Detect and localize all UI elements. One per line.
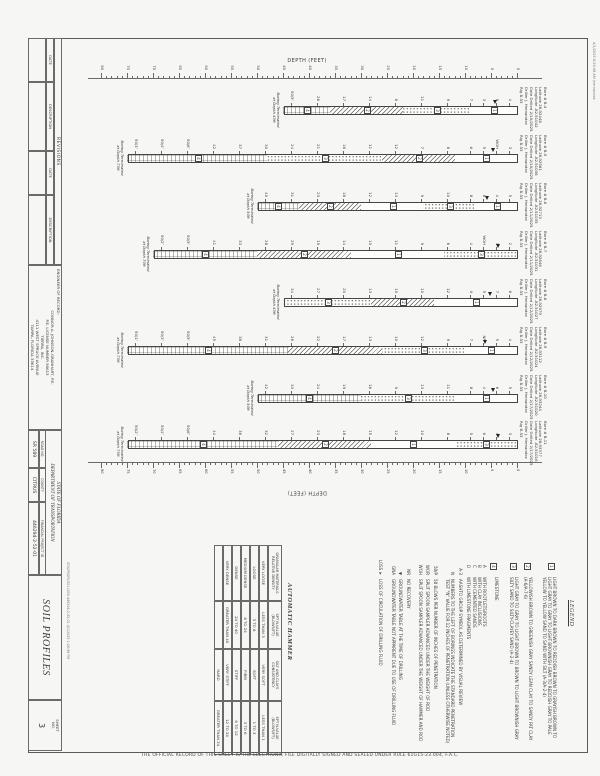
depth-axis-left-tick bbox=[226, 76, 227, 78]
spt-tick bbox=[291, 437, 292, 440]
hammer-header-cell: SILT AND CLAYS CONSISTENCY bbox=[268, 649, 282, 701]
spt-tick bbox=[421, 151, 422, 154]
spt-tick bbox=[510, 199, 511, 202]
depth-axis-left-tick bbox=[174, 76, 175, 78]
depth-axis-right-tick-label: 20 bbox=[412, 469, 416, 478]
spt-tick bbox=[265, 151, 266, 154]
spt-n-value: 12 bbox=[394, 137, 398, 149]
depth-axis-right-tick bbox=[486, 463, 487, 465]
boring-header-line: Date Drilled 2/12/2025 bbox=[528, 327, 532, 371]
depth-axis-right-tick bbox=[367, 463, 368, 465]
hammer-cell: 24 TO 40 bbox=[232, 601, 241, 649]
depth-axis-left-tick bbox=[408, 76, 409, 78]
legend-item-text: LIGHT GRAY TO GRAY TO LIGHT BROWN TO BRO… bbox=[508, 577, 518, 745]
spt-n-value: 11 bbox=[368, 137, 372, 149]
depth-axis-right-tick bbox=[320, 463, 321, 465]
engineer-of-record-header: ENGINEER OF RECORD: bbox=[56, 269, 60, 315]
spt-n-value: 28 bbox=[290, 329, 294, 341]
depth-axis-right-tick-label: 5 bbox=[490, 469, 494, 478]
spt-n-value: 50/6″ bbox=[186, 137, 190, 149]
legend-modifier-text: WITH ROOTLETS/ROOTS bbox=[482, 577, 487, 627]
depth-axis-left-tick-label: 0 bbox=[516, 61, 520, 70]
boring-header-line: Bore # B-7 bbox=[543, 231, 547, 252]
groundwater-triangle-icon bbox=[488, 292, 492, 296]
spt-tick bbox=[497, 199, 498, 202]
spt-n-value: 10 bbox=[420, 423, 424, 435]
legend-note-text: AASHTO GROUP SYMBOL AS DETERMINED BY VIS… bbox=[457, 579, 462, 745]
engineer-line: TAMPA, FLORIDA 33614 bbox=[30, 265, 34, 430]
depth-axis-right-tick bbox=[179, 463, 180, 468]
depth-axis-left-tick bbox=[434, 76, 435, 78]
legend-note-key: 50/P bbox=[432, 553, 437, 575]
spt-n-value: 36 bbox=[238, 423, 242, 435]
spt-tick bbox=[471, 391, 472, 394]
depth-axis-left-tick-label: 55 bbox=[230, 61, 234, 70]
depth-axis-right-tick-label: 65 bbox=[178, 469, 182, 478]
stratum-symbol-box: 2 bbox=[301, 251, 308, 258]
spt-tick bbox=[369, 103, 370, 106]
spt-n-value: 24 bbox=[316, 377, 320, 389]
depth-axis-right-tick-label: 15 bbox=[438, 469, 442, 478]
spt-n-value: 4 bbox=[495, 423, 499, 435]
hammer-table-title: AUTOMATIC HAMMER bbox=[286, 583, 293, 660]
spt-tick bbox=[471, 103, 472, 106]
spt-n-value: 26 bbox=[316, 89, 320, 101]
depth-axis-right-tick-label: 10 bbox=[464, 469, 468, 478]
boring-header-line: Date Drilled 2/10/2025 bbox=[528, 135, 532, 179]
depth-axis-left-tick bbox=[367, 76, 368, 78]
depth-axis-left-tick bbox=[486, 76, 487, 78]
spt-n-value: 50/5″ bbox=[186, 233, 190, 245]
depth-axis-left-tick bbox=[393, 76, 394, 78]
depth-axis-right-tick bbox=[502, 463, 503, 465]
legend-note-key: WOH bbox=[417, 553, 422, 575]
file-stamp: SOILPROFILE01.DGN 446294-2-52-01 4/1/202… bbox=[65, 562, 69, 659]
legend-modifier-text: WITH CLAY INCLUSIONS bbox=[476, 577, 481, 626]
stratum-symbol-box: 3 bbox=[325, 299, 332, 306]
hammer-cell: HARD bbox=[214, 649, 223, 701]
spt-n-value: WOH bbox=[482, 233, 486, 245]
spt-tick bbox=[447, 199, 448, 202]
print-stamp: 4/1/2025 8:26:48 AM jhernandez bbox=[592, 42, 596, 99]
spt-tick bbox=[239, 247, 240, 250]
sheet-title: SOIL PROFILES bbox=[40, 575, 52, 700]
spt-tick bbox=[510, 437, 511, 440]
hammer-cell: SOFT bbox=[250, 649, 259, 701]
depth-axis-left-tick bbox=[143, 76, 144, 78]
spt-n-value: 11 bbox=[446, 377, 450, 389]
spt-tick bbox=[447, 343, 448, 346]
depth-axis-left-tick bbox=[419, 76, 420, 78]
spt-tick bbox=[161, 437, 162, 440]
stratum-symbol-box: 2 bbox=[364, 107, 371, 114]
stratum-symbol-box: 3 bbox=[434, 107, 441, 114]
stratum-symbol-box: 1 bbox=[491, 107, 498, 114]
spt-n-value: 7 bbox=[469, 89, 473, 101]
legend-note-text: SPLIT SPOON SAMPLER ADVANCED UNDER THE W… bbox=[425, 579, 430, 745]
depth-axis-left-tick bbox=[117, 76, 118, 78]
depth-axis-right-tick-label: 30 bbox=[360, 469, 364, 478]
spt-n-value: 12 bbox=[446, 281, 450, 293]
stratum-symbol-box: 1 bbox=[390, 203, 397, 210]
hammer-cell: DENSE bbox=[232, 545, 241, 601]
legend-item-symbol: 3 bbox=[510, 563, 517, 570]
spt-tick bbox=[497, 391, 498, 394]
legend-item-text: LIGHT BROWN TO DARK BROWN TO REDDISH BRO… bbox=[541, 577, 556, 745]
depth-axis-right-tick-label: 45 bbox=[282, 469, 286, 478]
boring-header-line: Driller J. Hernandez bbox=[524, 327, 528, 365]
spt-n-value: 50/3″ bbox=[160, 329, 164, 341]
depth-axis-right-tick bbox=[309, 463, 310, 468]
depth-axis-left-tick-label: 5 bbox=[490, 61, 494, 70]
fdot-col-label: ROAD NO. bbox=[39, 430, 46, 468]
depth-axis-right-tick bbox=[112, 463, 113, 465]
spt-n-value: 3 bbox=[495, 233, 499, 245]
depth-axis-right-tick bbox=[216, 463, 217, 465]
depth-axis-left-tick-label: 80 bbox=[100, 61, 104, 70]
depth-axis-left-tick bbox=[205, 73, 206, 78]
termination-note-line: at Depth 75ft bbox=[115, 423, 119, 465]
hammer-cell: VERY LOOSE bbox=[259, 545, 268, 601]
depth-axis-left-tick bbox=[122, 76, 123, 78]
spt-tick bbox=[484, 151, 485, 154]
depth-axis-left-tick bbox=[351, 76, 352, 78]
legend-note-text: SPLIT SPOON SAMPLER ADVANCED UNDER THE W… bbox=[417, 579, 422, 745]
spt-tick bbox=[187, 343, 188, 346]
hammer-cell: FIRM bbox=[241, 649, 250, 701]
spt-n-value: 6 bbox=[482, 423, 486, 435]
spt-tick bbox=[343, 437, 344, 440]
depth-axis-left-tick bbox=[491, 73, 492, 78]
spt-n-value: 5 bbox=[482, 137, 486, 149]
boring-header-line: Rig B-53 bbox=[519, 135, 523, 152]
rotated-landscape-sheet: 4/1/2025 8:26:48 AM jhernandezSOILPROFIL… bbox=[0, 0, 600, 776]
stratum-symbol-box: 3 bbox=[478, 251, 485, 258]
spt-n-value: 38 bbox=[238, 329, 242, 341]
spt-n-value: 31 bbox=[290, 185, 294, 197]
spt-n-value: 50/4″ bbox=[160, 137, 164, 149]
spt-tick bbox=[510, 151, 511, 154]
depth-axis-left-tick bbox=[169, 76, 170, 78]
boring-column bbox=[284, 106, 518, 115]
spt-n-value: 7 bbox=[420, 137, 424, 149]
stratum-symbol-box: 1 bbox=[489, 347, 496, 354]
spt-n-value: 50/4″ bbox=[160, 423, 164, 435]
legend-modifier-key: C bbox=[471, 565, 476, 568]
spt-tick bbox=[369, 295, 370, 298]
depth-axis-left-tick bbox=[257, 73, 258, 78]
termination-note-line: at Depth 45ft bbox=[271, 89, 275, 131]
spt-n-value: 6 bbox=[495, 377, 499, 389]
spt-n-value: 4 bbox=[495, 185, 499, 197]
spt-n-value: 6 bbox=[469, 137, 473, 149]
depth-axis-left-tick bbox=[497, 76, 498, 78]
spt-tick bbox=[291, 199, 292, 202]
spt-tick bbox=[510, 343, 511, 346]
depth-axis-left-tick-label: 75 bbox=[126, 61, 130, 70]
spt-tick bbox=[239, 343, 240, 346]
groundwater-triangle-icon bbox=[491, 388, 495, 392]
depth-axis-right-tick bbox=[247, 463, 248, 465]
depth-axis-right-tick bbox=[252, 463, 253, 465]
depth-axis-right-tick bbox=[107, 463, 108, 465]
boring-header-line: Rig B-53 bbox=[519, 375, 523, 392]
boring-column bbox=[258, 394, 518, 403]
depth-axis-right-tick bbox=[419, 463, 420, 465]
depth-axis-right-tick bbox=[424, 463, 425, 465]
depth-axis-left-tick bbox=[190, 76, 191, 78]
spt-tick bbox=[343, 247, 344, 250]
spt-n-value: 7 bbox=[469, 329, 473, 341]
depth-axis-left-tick bbox=[231, 73, 232, 78]
spt-tick bbox=[291, 151, 292, 154]
fdot-state: STATE OF FLORIDA bbox=[54, 430, 60, 575]
depth-axis-right-tick bbox=[471, 463, 472, 465]
spt-tick bbox=[471, 151, 472, 154]
depth-axis-right-tick bbox=[346, 463, 347, 465]
hammer-cell: 12 TO 24 bbox=[223, 701, 232, 755]
depth-axis-right-tick bbox=[205, 463, 206, 468]
spt-tick bbox=[369, 343, 370, 346]
depth-axis-right-tick bbox=[330, 463, 331, 465]
depth-axis-right-tick bbox=[372, 463, 373, 465]
termination-note-line: Boring Terminated bbox=[120, 329, 124, 371]
hammer-cell: 8 TO 24 bbox=[241, 601, 250, 649]
depth-axis-right-tick bbox=[294, 463, 295, 465]
spt-tick bbox=[317, 247, 318, 250]
spt-tick bbox=[369, 437, 370, 440]
legend-note-text: 50 BLOWS PER NUMBER OF INCHES OF PENETRA… bbox=[432, 579, 437, 745]
legend-note-key: WOR bbox=[425, 553, 430, 575]
spt-n-value: 40 bbox=[264, 185, 268, 197]
spt-tick bbox=[484, 437, 485, 440]
spt-tick bbox=[510, 247, 511, 250]
depth-axis-left-tick bbox=[502, 76, 503, 78]
depth-axis-left-tick bbox=[450, 76, 451, 78]
stratum-symbol-box: 1 bbox=[473, 299, 480, 306]
sheet-canvas: 4/1/2025 8:26:48 AM jhernandezSOILPROFIL… bbox=[0, 0, 600, 776]
depth-axis-left-tick bbox=[315, 76, 316, 78]
termination-note-line: Boring Terminated bbox=[120, 137, 124, 179]
spt-tick bbox=[161, 247, 162, 250]
termination-note-line: Boring Terminated bbox=[146, 233, 150, 275]
spt-tick bbox=[317, 391, 318, 394]
spt-tick bbox=[395, 437, 396, 440]
depth-axis-right-tick bbox=[393, 463, 394, 465]
spt-tick bbox=[447, 151, 448, 154]
depth-axis-right-tick bbox=[304, 463, 305, 465]
termination-note-line: at Depth 50ft bbox=[245, 185, 249, 227]
stratum-symbol-box: 1 bbox=[483, 395, 490, 402]
depth-axis-left-tick-label: 60 bbox=[204, 61, 208, 70]
spt-tick bbox=[291, 343, 292, 346]
spt-n-value: 37 bbox=[238, 137, 242, 149]
spt-n-value: 12 bbox=[368, 185, 372, 197]
sheet-no-label: SHEET NO. bbox=[50, 700, 59, 751]
spt-n-value: 4 bbox=[469, 233, 473, 245]
spt-tick bbox=[213, 343, 214, 346]
official-record-disclaimer: THE OFFICIAL RECORD OF THIS SHEET IS THE… bbox=[0, 753, 600, 758]
depth-axis-left-tick bbox=[455, 76, 456, 78]
stratum-symbol-box: 2 bbox=[322, 441, 329, 448]
depth-axis-right-tick bbox=[413, 463, 414, 468]
depth-axis-right-tick bbox=[315, 463, 316, 465]
depth-axis-left-tick bbox=[133, 76, 134, 78]
spt-n-value: 3 bbox=[508, 137, 512, 149]
legend-note-key: ▼ bbox=[397, 553, 402, 575]
spt-n-value: 13 bbox=[394, 185, 398, 197]
spt-tick bbox=[395, 295, 396, 298]
depth-axis-right-tick bbox=[481, 463, 482, 465]
spt-n-value: 28 bbox=[264, 233, 268, 245]
boring-header-line: Bore # B-10 bbox=[543, 375, 547, 399]
depth-axis-left-tick bbox=[273, 76, 274, 78]
spt-n-value: 50/1″ bbox=[134, 329, 138, 341]
depth-axis-left-tick bbox=[413, 73, 414, 78]
hammer-cell bbox=[214, 545, 223, 601]
spt-n-value: 24 bbox=[290, 137, 294, 149]
depth-axis-right-title: DEPTH (FEET) bbox=[287, 489, 326, 495]
spt-n-value: 31 bbox=[264, 329, 268, 341]
depth-axis-left-tick bbox=[195, 76, 196, 78]
spt-tick bbox=[343, 199, 344, 202]
spt-n-value: 5 bbox=[482, 281, 486, 293]
depth-axis-left-tick-label: 30 bbox=[360, 61, 364, 70]
stratum-symbol-box: 4 bbox=[200, 441, 207, 448]
spt-n-value: 42 bbox=[212, 137, 216, 149]
stratum-symbol-box: 3 bbox=[405, 395, 412, 402]
termination-note-line: at Depth 70ft bbox=[141, 233, 145, 275]
boring-header-line: Rig B-53 bbox=[519, 279, 523, 296]
depth-axis-left-tick bbox=[278, 76, 279, 78]
hammer-cell: 3 TO 6 bbox=[241, 701, 250, 755]
boring-header-line: Bore # B-11 bbox=[543, 421, 547, 445]
depth-axis-right-tick bbox=[195, 463, 196, 465]
boring-header-line: Date Drilled 2/12/2025 bbox=[528, 279, 532, 323]
spt-tick bbox=[291, 295, 292, 298]
spt-tick bbox=[291, 103, 292, 106]
depth-axis-left-tick bbox=[237, 76, 238, 78]
spt-n-value: 16 bbox=[368, 377, 372, 389]
spt-n-value: 5 bbox=[495, 89, 499, 101]
stratum-symbol-box: 3 bbox=[322, 155, 329, 162]
spt-n-value: 8 bbox=[469, 185, 473, 197]
spt-n-value: 11 bbox=[420, 89, 424, 101]
boring-header-line: Date Drilled 2/11/2025 bbox=[528, 183, 532, 227]
depth-axis-right-tick bbox=[341, 463, 342, 465]
spt-n-value: 9 bbox=[446, 89, 450, 101]
depth-axis-left-tick bbox=[263, 76, 264, 78]
legend-note-text: LOSS OF CIRCULATION OF DRILLING FLUID bbox=[377, 579, 382, 745]
depth-axis-left-tick bbox=[268, 76, 269, 78]
boring-header-line: Rig B-53 bbox=[519, 231, 523, 248]
depth-axis-left-tick-label: 50 bbox=[256, 61, 260, 70]
legend-title: LEGEND bbox=[567, 600, 574, 626]
stratum-symbol-box: 2 bbox=[327, 203, 334, 210]
depth-axis-right-tick bbox=[517, 463, 518, 468]
spt-tick bbox=[161, 151, 162, 154]
spt-tick bbox=[471, 295, 472, 298]
engineer-line: 4111 WEST SPRUCE AVENUE bbox=[35, 265, 39, 430]
termination-note-line: at Depth 75ft bbox=[115, 329, 119, 371]
revisions-col-body bbox=[28, 195, 46, 265]
depth-axis-right-tick bbox=[159, 463, 160, 465]
boring-header-line: Driller J. Hernandez bbox=[524, 231, 528, 269]
legend-note-key: GNA bbox=[390, 553, 395, 575]
depth-axis-right-tick bbox=[356, 463, 357, 465]
boring-header-line: Bore # B-9 bbox=[543, 327, 547, 348]
spt-n-value: 8 bbox=[394, 89, 398, 101]
spt-tick bbox=[510, 295, 511, 298]
depth-axis-left-tick-label: 20 bbox=[412, 61, 416, 70]
boring-header-line: Date Drilled 2/17/2025 bbox=[528, 421, 532, 465]
spt-n-value: 18 bbox=[342, 423, 346, 435]
depth-axis-left-tick bbox=[361, 73, 362, 78]
spt-tick bbox=[447, 437, 448, 440]
depth-axis-right-tick bbox=[268, 463, 269, 465]
depth-axis-left-tick bbox=[252, 76, 253, 78]
depth-axis-right-tick bbox=[190, 463, 191, 465]
depth-axis-right-tick bbox=[148, 463, 149, 465]
spt-n-value: 5 bbox=[508, 185, 512, 197]
legend-note-key: NR bbox=[405, 553, 410, 575]
depth-axis-right-tick bbox=[138, 463, 139, 465]
spt-n-value: 15 bbox=[368, 423, 372, 435]
depth-axis-left-tick bbox=[330, 76, 331, 78]
depth-axis-right-tick bbox=[403, 463, 404, 465]
boring-column bbox=[258, 202, 518, 211]
depth-axis-left-tick bbox=[304, 76, 305, 78]
spt-tick bbox=[135, 437, 136, 440]
depth-axis-left-tick bbox=[211, 76, 212, 78]
stratum-symbol-box: 3 bbox=[421, 347, 428, 354]
spt-tick bbox=[343, 343, 344, 346]
boring-column bbox=[128, 346, 518, 355]
spt-n-value: WOH bbox=[495, 137, 499, 149]
depth-axis-left-tick bbox=[465, 73, 466, 78]
spt-n-value: 27 bbox=[316, 281, 320, 293]
depth-axis-right-tick bbox=[143, 463, 144, 465]
depth-axis-right-tick bbox=[476, 463, 477, 465]
depth-axis-right-tick bbox=[153, 463, 154, 468]
spt-n-value: 50/3″ bbox=[134, 137, 138, 149]
spt-tick bbox=[421, 391, 422, 394]
spt-tick bbox=[510, 103, 511, 106]
spt-n-value: 34 bbox=[290, 281, 294, 293]
spt-n-value: 14 bbox=[342, 233, 346, 245]
hammer-cell: GREATER THAN 40 bbox=[223, 601, 232, 649]
depth-axis-right-tick bbox=[174, 463, 175, 465]
spt-tick bbox=[317, 343, 318, 346]
boring-header-line: Bore # B-4 bbox=[543, 87, 547, 108]
spt-n-value: 30 bbox=[264, 137, 268, 149]
depth-axis-right-tick bbox=[325, 463, 326, 465]
depth-axis-left-tick bbox=[148, 76, 149, 78]
depth-axis-left-tick bbox=[164, 76, 165, 78]
soil-profiles-sheet: 4/1/2025 8:26:48 AM jhernandezSOILPROFIL… bbox=[0, 0, 600, 776]
spt-n-value: 20 bbox=[342, 281, 346, 293]
boring-header-line: Date Drilled 2/10/2025 bbox=[528, 87, 532, 131]
depth-axis-right-tick bbox=[237, 463, 238, 465]
revisions-col-header: DATE bbox=[46, 38, 54, 82]
spt-tick bbox=[187, 151, 188, 154]
boring-header-line: Rig B-53 bbox=[519, 421, 523, 438]
depth-axis-left-tick bbox=[372, 76, 373, 78]
depth-axis-right-tick bbox=[200, 463, 201, 465]
spt-n-value: 4 bbox=[508, 329, 512, 341]
engineer-line: P.E. LICENSE NUMBER 90613 bbox=[45, 265, 49, 430]
spt-n-value: 6 bbox=[508, 281, 512, 293]
